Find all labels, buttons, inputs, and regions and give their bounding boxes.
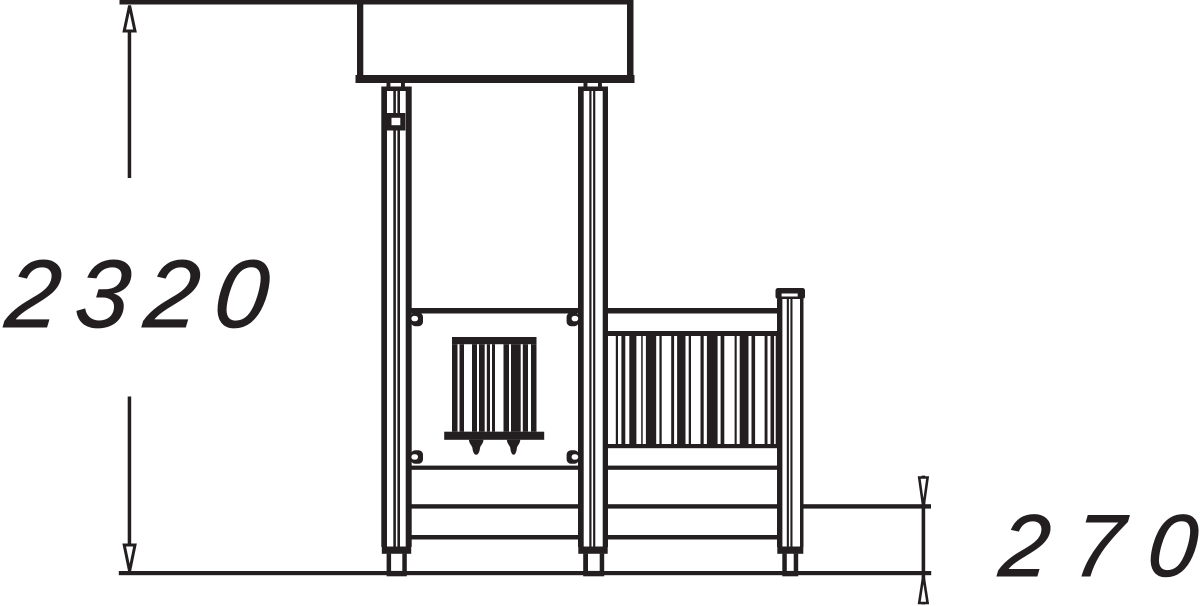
svg-text:2320: 2320 [0,241,290,348]
svg-text:270: 270 [994,496,1200,595]
